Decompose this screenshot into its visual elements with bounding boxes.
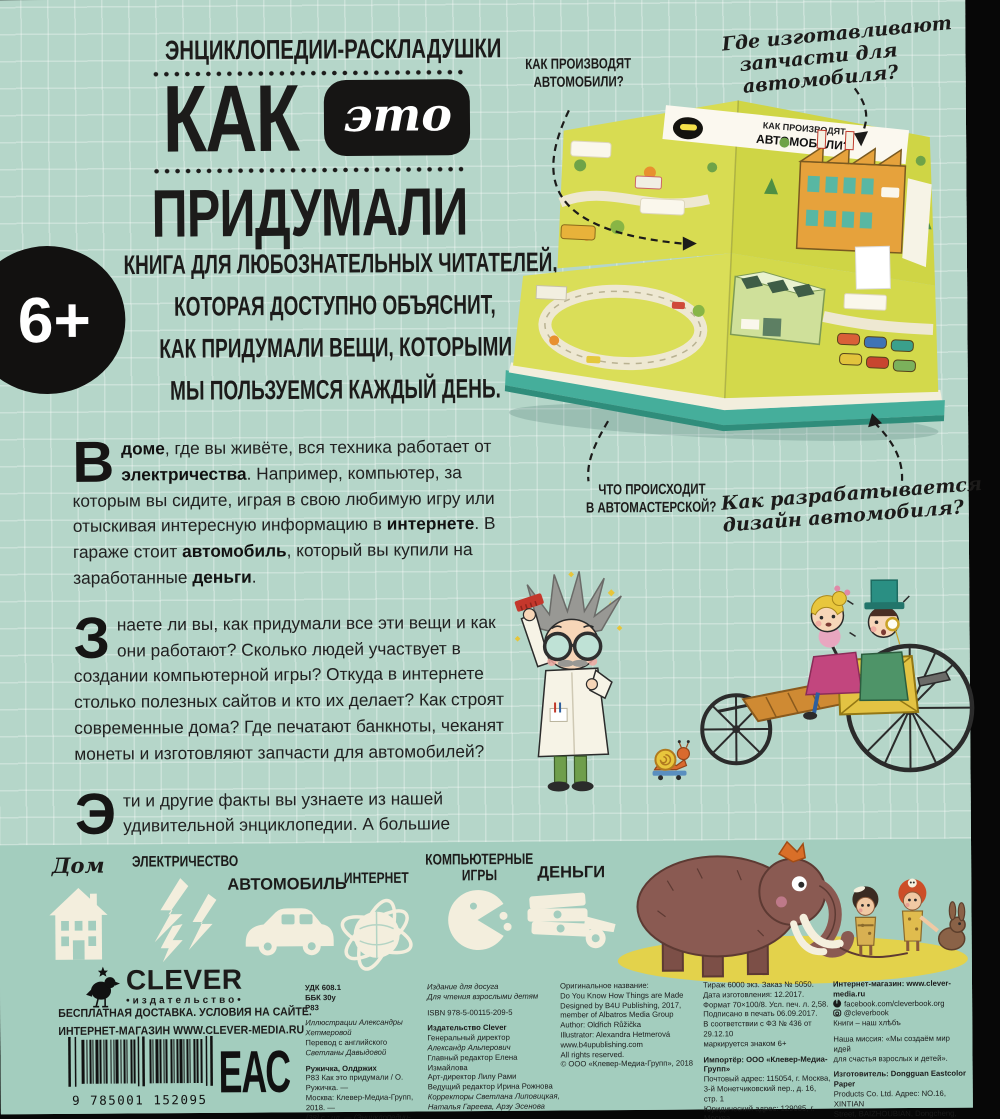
children-on-antique-car-illustration [687, 560, 984, 787]
imprint-line: маркируется знаком 6+ [703, 1038, 831, 1049]
imprint-line: Изготовитель: Dongguan Eastcolor Paper [834, 1069, 969, 1090]
back-cover: ЭНЦИКЛОПЕДИИ-РАСКЛАДУШКИ КАК это ПРИДУМА… [0, 0, 973, 1114]
annotation-repair-shop: ЧТО ПРОИСХОДИТВ АВТОМАСТЕРСКОЙ? [571, 479, 731, 516]
imprint-line: Москва: Клевер-Медиа-Групп, 2018. — [306, 1092, 426, 1112]
imprint-line: Книги – наш хлѣбъ [833, 1018, 968, 1029]
pacman-icon [447, 890, 511, 950]
scientist-illustration [509, 566, 636, 797]
imprint-line: Р83 Как это придумали / О. Ружичка. — [306, 1073, 426, 1093]
house-icon [47, 884, 110, 964]
category-home: Дом [47, 853, 110, 964]
title-word-kak: КАК [162, 75, 298, 162]
imprint-line: Подписано в печать 06.09.2017. [703, 1009, 831, 1020]
paragraph: Знаете ли вы, как придумали все эти вещи… [73, 610, 524, 768]
imprint-line: Интернет-магазин: www.clever-media.ru [833, 979, 968, 1000]
book-back-cover-photo: ЭНЦИКЛОПЕДИИ-РАСКЛАДУШКИ КАК это ПРИДУМА… [0, 0, 1000, 1119]
imprint-line: ISBN 978-5-00115-209-5 [427, 1007, 559, 1018]
imprint-line: Do You Know How Things are Made [560, 990, 702, 1001]
imprint-column-print-run: Тираж 6000 экз. Заказ № 5050.Дата изгото… [703, 980, 832, 1119]
imprint-column-publisher-staff: Издание для досугаДля чтения взрослыми д… [427, 981, 560, 1111]
imprint-line: для счастья взрослых и детей». [834, 1053, 969, 1064]
imprint-line: Наша миссия: «Мы создаём мир идей [833, 1034, 968, 1055]
clever-bird-icon [84, 967, 122, 1009]
imprint-line: Тираж 6000 экз. Заказ № 5050. [703, 980, 831, 991]
annotation-how-cars-made: КАК ПРОИЗВОДЯТАВТОМОБИЛИ? [499, 54, 659, 91]
internet-globe-icon [337, 892, 416, 973]
imprint-line: [38] с.: ил. — (Энциклопедии-раскладушки… [306, 1112, 426, 1119]
title-word-eto: это [324, 79, 471, 156]
imprint-line: © ООО «Клевер-Медиа-Групп», 2018 [561, 1059, 703, 1070]
imprint-line: Р83 [305, 1002, 425, 1013]
lightning-bolts-icon [142, 876, 229, 965]
imprint-line: Главный редактор Елена Измайлова [427, 1052, 559, 1073]
category-car: АВТОМОБИЛЬ [227, 875, 347, 957]
money-cart-icon [523, 888, 619, 951]
category-internet: ИНТЕРНЕТ [337, 870, 416, 973]
imprint-line: Products Co. Ltd. Адрес: NO.16, XINTIAN [834, 1089, 969, 1110]
fb-icon [833, 999, 841, 1007]
imprint-line: Юридический адрес: 129085, г. Москва, [704, 1103, 832, 1119]
barcode: 9 785001 152095 [64, 1036, 214, 1108]
imprint-line: Наталья Гареева, Арзу Эсенова [428, 1101, 560, 1112]
imprint-line: Для чтения взрослыми детям [427, 991, 559, 1002]
cover-main-area: ЭНЦИКЛОПЕДИИ-РАСКЛАДУШКИ КАК это ПРИДУМА… [0, 0, 971, 845]
imprint-column-contacts: Интернет-магазин: www.clever-media.rufac… [833, 979, 969, 1119]
imprint-line: Корректоры Светлана Липовицкая, [428, 1091, 560, 1102]
dashed-connector-arrows [498, 24, 972, 557]
imprint-line: Designed by B4U Publishing, 2017, [560, 1000, 702, 1011]
car-icon [239, 900, 335, 957]
ig-icon [833, 1009, 841, 1017]
imprint-line: 3-й Монетчиковский пер., д. 16, стр. 1 [704, 1084, 832, 1104]
paragraph: В доме, где вы живёте, вся техника работ… [72, 434, 523, 592]
category-money: ДЕНЬГИ [523, 863, 620, 951]
eac-conformity-mark: ЕАС [218, 1039, 290, 1108]
imprint-column-bibliographic: УДК 608.1ББК 30уР83Иллюстрации Александр… [305, 982, 426, 1119]
imprint-column-original-edition: Оригинальное название:Do You Know How Th… [560, 980, 703, 1069]
imprint-line: Иллюстрации Александры Хетмеровой [305, 1018, 425, 1038]
barcode-digits: 9 785001 152095 [65, 1092, 215, 1108]
imprint-line: Импортёр: ООО «Клевер-Медиа-Групп» [704, 1054, 832, 1074]
imprint-line: Светланы Давыдовой [305, 1047, 425, 1058]
imprint-line: В соответствии с ФЗ № 436 от 29.12.10 [703, 1019, 831, 1039]
book-title: КАК это [114, 77, 505, 160]
category-footer-band: Дом ЭЛЕКТРИЧЕСТВО [0, 839, 973, 1115]
mammoth-and-cavemen-illustration [607, 838, 988, 991]
publisher-logo: CLEVER •издательство• [84, 966, 244, 1009]
barcode-bars [65, 1036, 213, 1087]
title-word-pridumali: ПРИДУМАЛИ [69, 173, 550, 252]
